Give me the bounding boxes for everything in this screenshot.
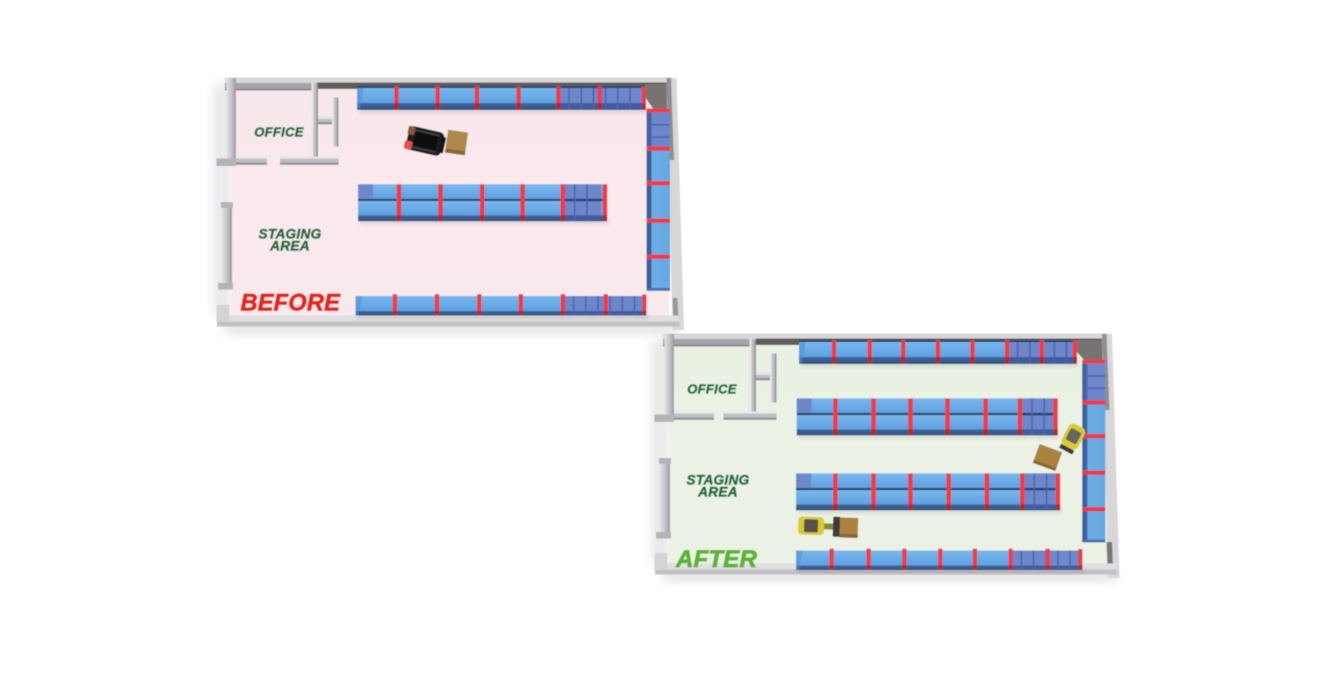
svg-text:AREA: AREA: [697, 485, 738, 500]
svg-text:OFFICE: OFFICE: [254, 125, 303, 140]
svg-text:AFTER: AFTER: [675, 546, 757, 573]
svg-text:OFFICE: OFFICE: [687, 382, 736, 397]
svg-text:AREA: AREA: [269, 238, 310, 253]
svg-text:BEFORE: BEFORE: [241, 291, 342, 317]
